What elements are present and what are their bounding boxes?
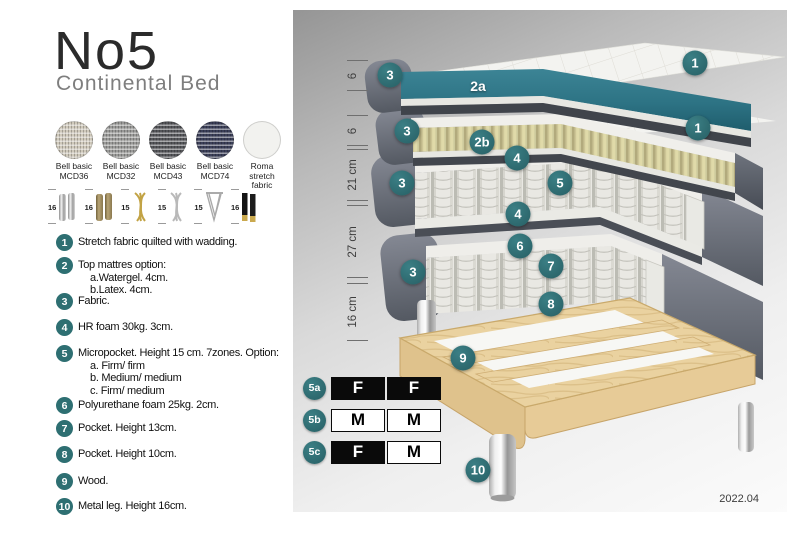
feature-item: 8 Pocket. Height 10cm. xyxy=(48,446,177,461)
feature-text: Pocket. Height 10cm. xyxy=(78,446,177,461)
feature-text: Stretch fabric quilted with wadding. xyxy=(78,234,237,249)
callout-3-fabric: 3 xyxy=(390,171,415,196)
dimension-label: 27 cm xyxy=(347,212,359,272)
callout-1-top: 1 xyxy=(683,51,708,76)
feature-number-badge: 1 xyxy=(56,234,73,251)
feature-item: 3 Fabric. xyxy=(48,293,110,308)
dimension-segment: 6 xyxy=(339,60,369,91)
firmness-cell: F xyxy=(387,377,441,400)
feature-text: Micropocket. Height 15 cm. 7zones. Optio… xyxy=(78,345,279,360)
dimension-tick xyxy=(347,340,368,341)
dimension-segment: 6 xyxy=(339,115,369,146)
feature-text: Polyurethane foam 25kg. 2cm. xyxy=(78,397,219,412)
feature-number-badge: 2 xyxy=(56,257,73,274)
feature-item: 7 Pocket. Height 13cm. xyxy=(48,420,177,435)
feature-text: HR foam 30kg. 3cm. xyxy=(78,319,173,334)
dimension-tick xyxy=(347,205,368,206)
firmness-row: 5c F M xyxy=(303,440,441,464)
feature-number-badge: 8 xyxy=(56,446,73,463)
dimension-label: 16 cm xyxy=(347,282,359,342)
feature-list: 1 Stretch fabric quilted with wadding. 2… xyxy=(48,0,298,533)
feature-item: 6 Polyurethane foam 25kg. 2cm. xyxy=(48,397,219,412)
feature-item: 2 Top mattres option: a.Watergel. 4cm. b… xyxy=(48,257,168,297)
feature-subtext: c. Firm/ medium xyxy=(90,385,279,398)
cutaway-panel: 6 6 21 cm 27 cm 16 cm xyxy=(293,10,787,512)
firmness-row-label: 5c xyxy=(303,441,326,464)
feature-subtext: a.Watergel. 4cm. xyxy=(90,272,168,285)
callout-2b-latex: 2b xyxy=(470,130,495,155)
feature-number-badge: 4 xyxy=(56,319,73,336)
feature-text: Wood. xyxy=(78,473,108,488)
dimension-label: 6 xyxy=(347,46,359,106)
feature-item: 4 HR foam 30kg. 3cm. xyxy=(48,319,173,334)
firmness-cell: M xyxy=(331,409,385,432)
callout-2a-watergel: 2a xyxy=(470,78,486,94)
callout-3-fabric: 3 xyxy=(378,63,403,88)
callout-8-pocket10: 8 xyxy=(539,292,564,317)
callout-6-pufoam: 6 xyxy=(508,234,533,259)
dimension-segment: 21 cm xyxy=(339,149,369,201)
firmness-cell: M xyxy=(387,409,441,432)
callout-3-fabric: 3 xyxy=(395,119,420,144)
feature-text: Pocket. Height 13cm. xyxy=(78,420,177,435)
feature-subtext: b. Medium/ medium xyxy=(90,372,279,385)
callout-4-hrfoam: 4 xyxy=(505,146,530,171)
feature-number-badge: 5 xyxy=(56,345,73,362)
feature-text: Top mattres option: xyxy=(78,257,168,272)
callout-9-wood: 9 xyxy=(451,346,476,371)
version-label: 2022.04 xyxy=(719,493,759,505)
feature-item: 10 Metal leg. Height 16cm. xyxy=(48,498,187,513)
feature-number-badge: 9 xyxy=(56,473,73,490)
feature-text: Metal leg. Height 16cm. xyxy=(78,498,187,513)
firmness-row: 5a F F xyxy=(303,376,441,400)
feature-number-badge: 6 xyxy=(56,397,73,414)
feature-item: 9 Wood. xyxy=(48,473,108,488)
firmness-row-label: 5b xyxy=(303,409,326,432)
dimension-segment: 27 cm xyxy=(339,205,369,278)
callout-10-leg: 10 xyxy=(466,458,491,483)
dimension-label: 21 cm xyxy=(347,145,359,205)
callout-5-micropocket: 5 xyxy=(548,171,573,196)
dimension-tick xyxy=(347,277,368,278)
firmness-row: 5b M M xyxy=(303,408,441,432)
feature-text: Fabric. xyxy=(78,293,110,308)
feature-number-badge: 7 xyxy=(56,420,73,437)
feature-number-badge: 3 xyxy=(56,293,73,310)
callout-1-lower: 1 xyxy=(686,116,711,141)
callout-4-hrfoam: 4 xyxy=(506,202,531,227)
firmness-cell: F xyxy=(331,377,385,400)
callout-7-pocket13: 7 xyxy=(539,254,564,279)
firmness-cell: M xyxy=(387,441,441,464)
feature-item: 1 Stretch fabric quilted with wadding. xyxy=(48,234,237,249)
dimension-segment: 16 cm xyxy=(339,283,369,341)
firmness-cell: F xyxy=(331,441,385,464)
feature-number-badge: 10 xyxy=(56,498,73,515)
firmness-row-label: 5a xyxy=(303,377,326,400)
feature-subtext: a. Firm/ firm xyxy=(90,360,279,373)
dimension-tick xyxy=(347,90,368,91)
feature-item: 5 Micropocket. Height 15 cm. 7zones. Opt… xyxy=(48,345,279,397)
dimension-tick xyxy=(347,200,368,201)
callout-3-fabric: 3 xyxy=(401,260,426,285)
front-metal-leg xyxy=(489,434,516,501)
product-sheet: No5 Continental Bed Bell basicMCD36 Bell… xyxy=(0,0,800,533)
